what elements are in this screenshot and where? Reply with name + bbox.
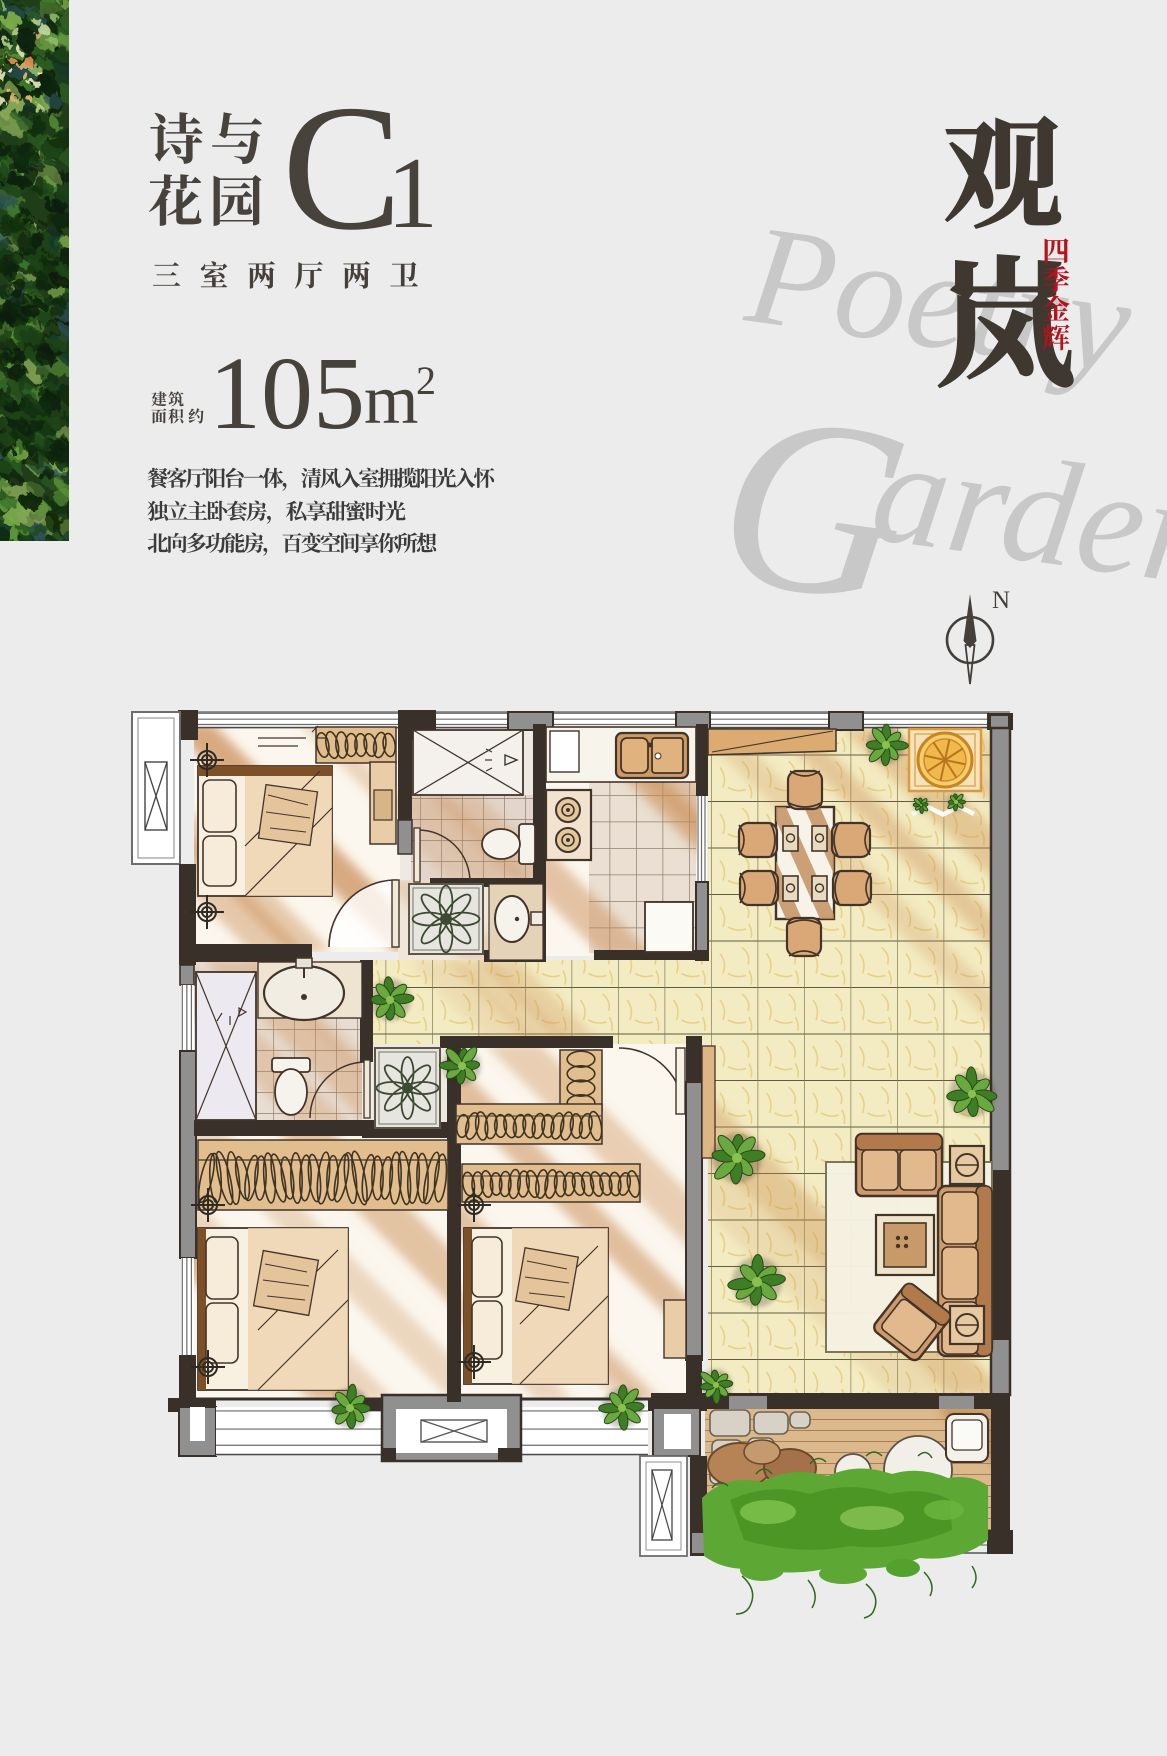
svg-text:1: 1 bbox=[387, 137, 438, 250]
svg-text:m: m bbox=[364, 362, 418, 439]
svg-text:2: 2 bbox=[416, 358, 436, 403]
svg-text:C: C bbox=[282, 68, 402, 267]
svg-text:105: 105 bbox=[209, 336, 365, 451]
svg-text:N: N bbox=[992, 587, 1010, 614]
